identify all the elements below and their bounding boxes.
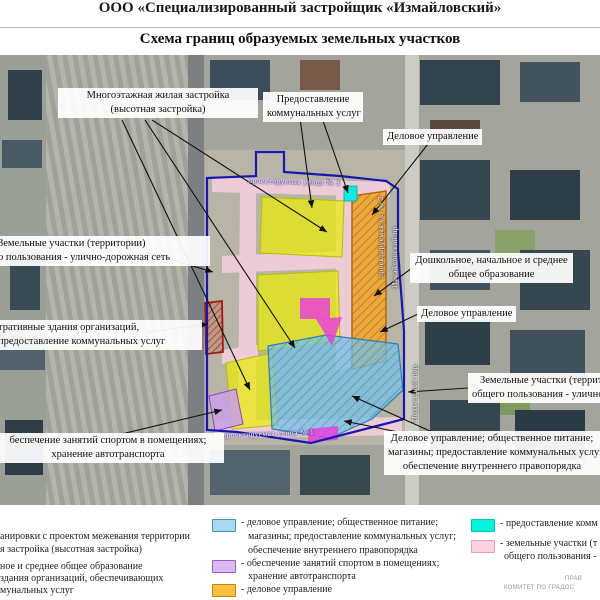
callout-vysotnaya: Многоэтажная жилая застройка (высотная з… <box>58 88 258 118</box>
callout-delovoe-right: Деловое управление <box>417 306 516 322</box>
legend-mid-blue-line1: - деловое управление; общественное питан… <box>241 517 438 529</box>
callout-line: коммунальных услуг <box>267 107 359 121</box>
leader-line <box>152 120 327 232</box>
street-label-vertical-2: Измайловский пр. <box>390 224 399 288</box>
legend-mid-purple-line2: хранение автотранспорта <box>248 571 356 583</box>
callout-line: Дошкольное, начальное и среднее <box>414 254 569 268</box>
callout-line: общего пользования - улично-доро <box>472 388 600 402</box>
callout-line: беспечение занятий спортом в помещениях; <box>0 434 220 448</box>
legend-swatch-pink <box>471 540 495 553</box>
legend-mid-blue-line3: обеспечение внутреннего правопорядка <box>248 545 418 557</box>
legend-left-entry1-line2: я застройка (высотная застройка) <box>0 544 142 556</box>
legend-mid-orange-line1: - деловое управление <box>241 584 332 596</box>
callout-line: Земельные участки (территории) <box>0 237 206 251</box>
callout-line: хранение автотранспорта <box>0 448 220 462</box>
legend-swatch-blue <box>212 519 236 532</box>
legend-left-entry2-line3: мунальных услуг <box>0 585 74 597</box>
callout-line: магазины; предоставление коммунальных ус… <box>388 446 596 460</box>
callout-line: общее образование <box>414 268 569 282</box>
legend-left-entry2-line2: здания организаций, обеспечивающих <box>0 573 163 585</box>
legend-right-pink-line2: общего пользования - <box>504 551 596 563</box>
legend-left-entry2-line1: ное и среднее общее образование <box>0 561 143 573</box>
organization-title: ООО «Специализированный застройщик «Изма… <box>0 0 600 17</box>
footer-authority-line2: КОМИТЕТ ПО ГРАДОС <box>504 585 574 591</box>
page-title: Схема границ образуемых земельных участк… <box>0 31 600 48</box>
callout-zem-right: Земельные участки (террито общего пользо… <box>468 373 600 403</box>
street-label-vertical-3: Подъездной пер. <box>410 363 419 422</box>
street-label-vertical-1: проектируемая ул. № 2 <box>376 196 385 278</box>
zone-yellow-1 <box>260 197 344 257</box>
legend-mid-blue-line2: магазины; предоставление коммунальных ус… <box>248 531 456 543</box>
callout-line: (высотная застройка) <box>62 103 254 117</box>
callout-line: предоставление коммунальных услуг <box>0 335 198 349</box>
callout-doshkolnoe: Дошкольное, начальное и среднее общее об… <box>410 253 573 283</box>
callout-delovoe-top: Деловое управление <box>383 129 482 145</box>
callout-admin: тративные здания организаций, предоставл… <box>0 320 202 350</box>
zone-magenta-1 <box>300 298 330 319</box>
callout-line: тративные здания организаций, <box>0 321 198 335</box>
callout-line: обеспечение внутреннего правопорядка <box>388 460 596 474</box>
callout-line: Земельные участки (террито <box>472 374 600 388</box>
header-divider <box>0 27 600 28</box>
legend-left-entry1-line1: анировки с проектом межевания территории <box>0 531 190 543</box>
callout-line: Деловое управление <box>421 307 512 321</box>
callout-line: Деловое управление; общественное питание… <box>388 432 596 446</box>
legend-swatch-cyan <box>471 519 495 532</box>
legend-swatch-orange <box>212 584 236 597</box>
legend-right-cyan-line1: - предоставление комм <box>500 518 598 530</box>
callout-line: Предоставление <box>267 93 359 107</box>
callout-line: Деловое управление <box>387 130 478 144</box>
legend-right-pink-line1: - земельные участки (т <box>500 538 597 550</box>
legend-mid-purple-line1: - обеспечение занятий спортом в помещени… <box>241 558 439 570</box>
callout-zem-left: Земельные участки (территории) о пользов… <box>0 236 210 266</box>
scheme-page: ООО «Специализированный застройщик «Изма… <box>0 0 600 600</box>
callout-line: о пользования - улично-дорожная сеть <box>0 251 206 265</box>
legend-swatch-purple <box>212 560 236 573</box>
callout-delovoe-bottom: Деловое управление; общественное питание… <box>384 431 600 475</box>
callout-line: Многоэтажная жилая застройка <box>62 89 254 103</box>
callout-kommunalnye: Предоставление коммунальных услуг <box>263 92 363 122</box>
footer-authority-line1: ПРАВ <box>565 576 582 582</box>
callout-sport: беспечение занятий спортом в помещениях;… <box>0 433 224 463</box>
